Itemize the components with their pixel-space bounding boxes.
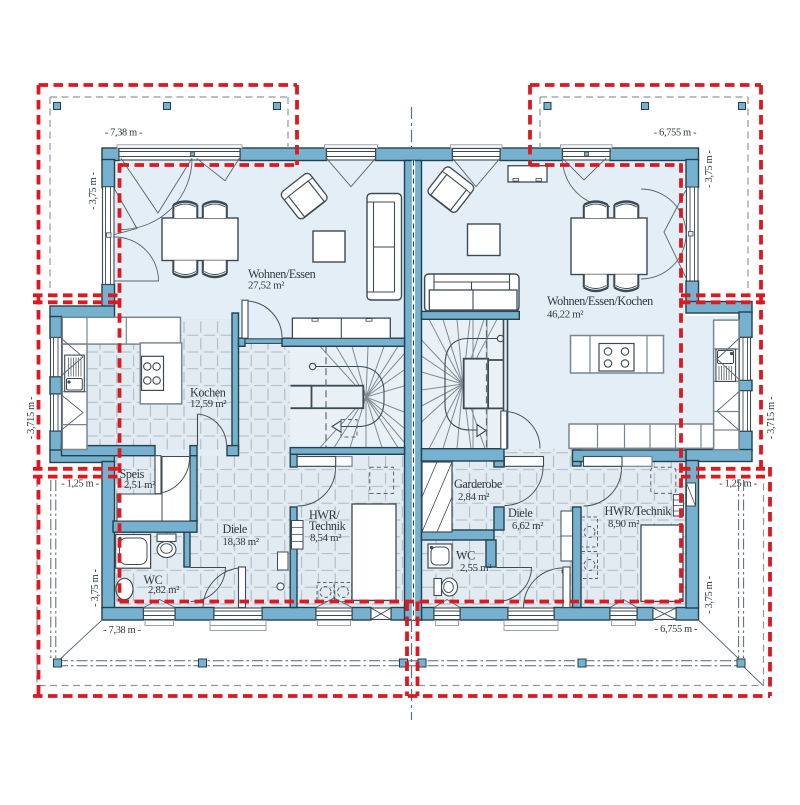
svg-text:HWR/Technik: HWR/Technik bbox=[605, 504, 673, 518]
svg-text:- 3,75 m -: - 3,75 m - bbox=[88, 171, 99, 209]
svg-text:18,38 m²: 18,38 m² bbox=[223, 536, 259, 548]
svg-text:6,62 m²: 6,62 m² bbox=[512, 520, 543, 532]
svg-text:- 6,755 m -: - 6,755 m - bbox=[654, 128, 697, 139]
svg-text:- 7,38 m -: - 7,38 m - bbox=[103, 625, 141, 636]
svg-text:Garderobe: Garderobe bbox=[454, 477, 502, 491]
svg-text:- 3,75 m -: - 3,75 m - bbox=[704, 149, 715, 187]
svg-text:- 7,38 m -: - 7,38 m - bbox=[105, 128, 143, 139]
svg-text:- 3,75 m -: - 3,75 m - bbox=[90, 568, 101, 606]
svg-text:2,55 m²: 2,55 m² bbox=[460, 562, 491, 574]
svg-text:- 1,25 m -: - 1,25 m - bbox=[719, 479, 757, 490]
svg-text:Wohnen/Essen/Kochen: Wohnen/Essen/Kochen bbox=[547, 294, 653, 308]
svg-text:27,52 m²: 27,52 m² bbox=[248, 280, 284, 292]
svg-text:- 6,755 m -: - 6,755 m - bbox=[655, 624, 698, 635]
svg-text:Diele: Diele bbox=[508, 506, 532, 520]
svg-text:2,82 m²: 2,82 m² bbox=[148, 584, 179, 596]
svg-text:2,84 m²: 2,84 m² bbox=[458, 491, 489, 503]
svg-text:Diele: Diele bbox=[223, 522, 247, 536]
svg-text:- 3,715 m -: - 3,715 m - bbox=[766, 396, 777, 439]
svg-text:- 3,715 m -: - 3,715 m - bbox=[26, 396, 37, 439]
svg-text:8,54 m²: 8,54 m² bbox=[310, 532, 341, 544]
svg-text:- 1,25 m -: - 1,25 m - bbox=[61, 479, 99, 490]
svg-text:8,90 m²: 8,90 m² bbox=[608, 518, 639, 530]
svg-text:2,51 m²: 2,51 m² bbox=[124, 479, 155, 491]
svg-text:46,22 m²: 46,22 m² bbox=[547, 309, 583, 321]
svg-text:12,59 m²: 12,59 m² bbox=[190, 398, 226, 410]
svg-text:WC: WC bbox=[456, 549, 475, 563]
svg-text:Technik: Technik bbox=[309, 519, 347, 533]
svg-text:- 3,75 m -: - 3,75 m - bbox=[704, 575, 715, 613]
